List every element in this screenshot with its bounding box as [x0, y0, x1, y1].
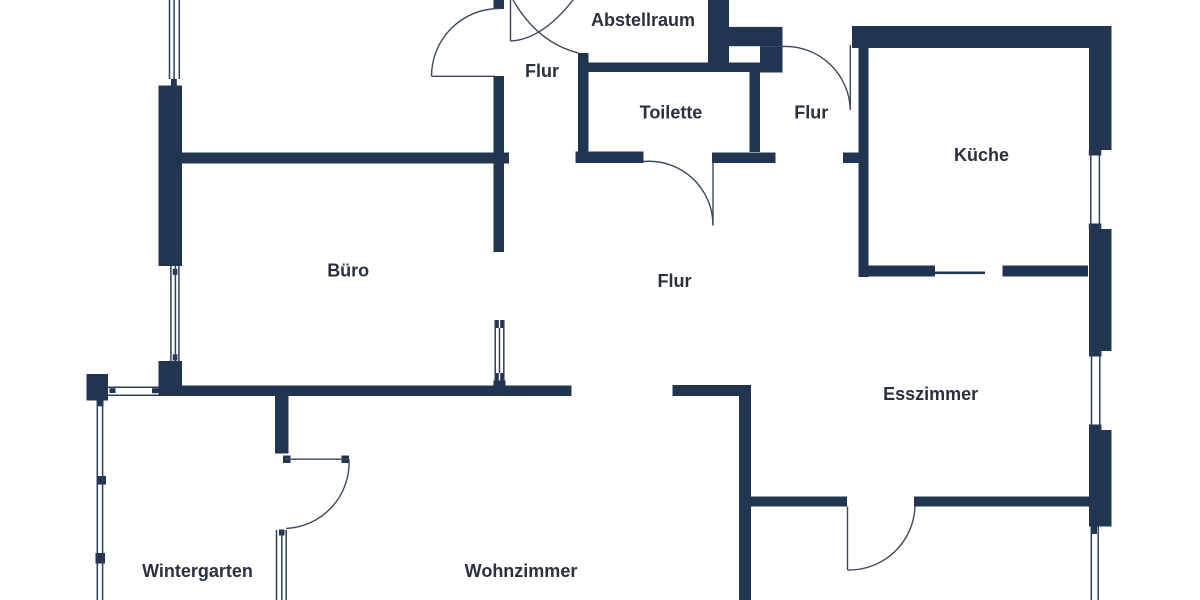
svg-text:Esszimmer: Esszimmer — [883, 384, 978, 404]
svg-text:Toilette: Toilette — [640, 103, 703, 123]
svg-text:Küche: Küche — [954, 145, 1009, 165]
svg-text:Abstellraum: Abstellraum — [591, 10, 695, 30]
svg-text:Wohnzimmer: Wohnzimmer — [465, 561, 578, 581]
svg-text:Wintergarten: Wintergarten — [142, 561, 253, 581]
svg-text:Flur: Flur — [658, 271, 692, 291]
svg-text:Flur: Flur — [794, 103, 828, 123]
svg-text:Flur: Flur — [525, 61, 559, 81]
svg-text:Büro: Büro — [327, 261, 369, 281]
